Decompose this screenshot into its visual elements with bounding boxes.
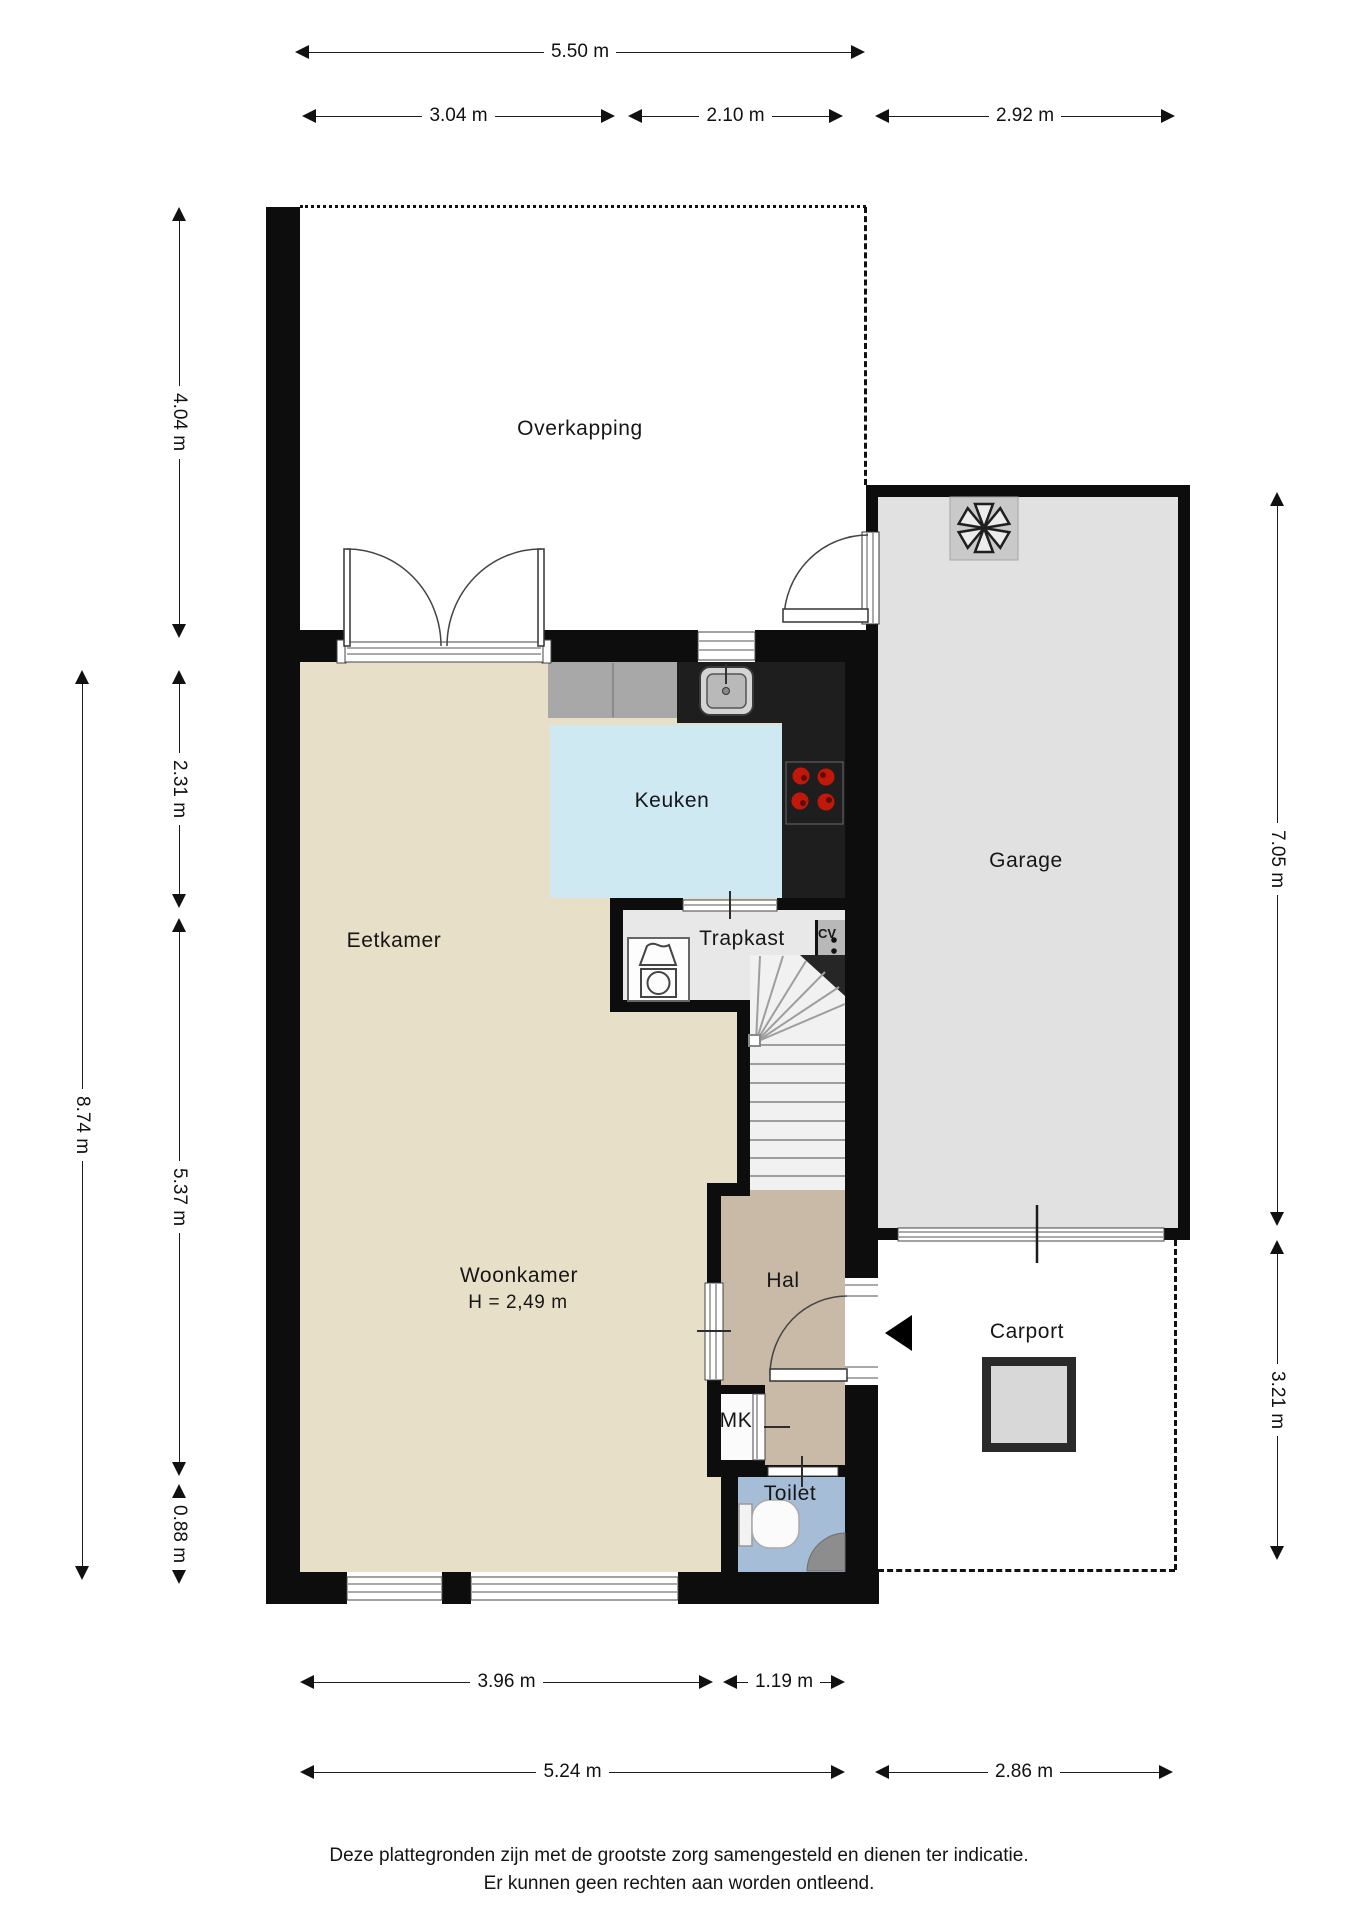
room-label-mk: MK (626, 1409, 846, 1433)
dim-right-garage: 7.05 m (1265, 492, 1289, 1226)
dim-top-garage: 2.92 m (875, 105, 1175, 127)
hal-window: <716 y1="1284"/> (697, 1283, 731, 1380)
front-door (770, 1278, 878, 1385)
room-label-hal: Hal (673, 1269, 893, 1293)
sink-icon (700, 664, 753, 715)
disclaimer: Deze plattegronden zijn met de grootste … (52, 1842, 1306, 1898)
room-label-garage: Garage (916, 849, 1136, 873)
dim-left-toilet: 0.88 m (167, 1484, 191, 1572)
dim-left-woonkamer: 5.37 m (167, 918, 191, 1476)
dim-left-total: 8.74 m (70, 670, 94, 1580)
disclaimer-line-2: Er kunnen geen rechten aan worden ontlee… (52, 1870, 1306, 1898)
room-label-overkapping: Overkapping (470, 417, 690, 441)
room-label-keuken: Keuken (562, 789, 782, 813)
room-label-toilet: Toilet (680, 1482, 900, 1506)
plan-linework: <716 y1="1284"/> (0, 0, 1358, 1920)
entrance-arrow-icon (885, 1315, 912, 1351)
dim-top-total: 5.50 m (295, 41, 865, 63)
dim-bottom-total: 5.24 m (300, 1761, 845, 1783)
dim-left-overkapping: 4.04 m (167, 207, 191, 638)
room-label-carport: Carport (917, 1320, 1137, 1344)
room-label-woonkamer: Woonkamer (409, 1264, 629, 1288)
room-label-ceiling-height: H = 2,49 m (408, 1291, 628, 1315)
bottom-window-1 (347, 1577, 442, 1600)
trapkast-door (683, 891, 777, 919)
dim-bottom-woonkamer: 3.96 m (300, 1671, 713, 1693)
garage-door (898, 1205, 1164, 1263)
floorplan-page: <716 y1="1284"/> (0, 0, 1358, 1920)
dim-bottom-hal: 1.19 m (723, 1671, 845, 1693)
room-label-cv: CV (807, 922, 847, 946)
dim-bottom-carport: 2.86 m (875, 1761, 1173, 1783)
disclaimer-line-1: Deze plattegronden zijn met de grootste … (52, 1842, 1306, 1870)
dim-left-keuken: 2.31 m (167, 670, 191, 908)
hob-icon (786, 762, 843, 824)
corner-basin-icon (807, 1533, 845, 1571)
bottom-window-2 (471, 1577, 678, 1600)
dim-top-mid: 2.10 m (628, 105, 843, 127)
toilet-icon (739, 1500, 799, 1548)
dim-right-carport: 3.21 m (1265, 1240, 1289, 1560)
dim-top-left: 3.04 m (302, 105, 615, 127)
kitchen-window (698, 632, 755, 660)
fan-icon (950, 497, 1018, 560)
stairs (749, 955, 845, 1176)
garage-side-door (783, 532, 879, 624)
room-label-eetkamer: Eetkamer (284, 929, 504, 953)
french-doors (337, 549, 551, 663)
